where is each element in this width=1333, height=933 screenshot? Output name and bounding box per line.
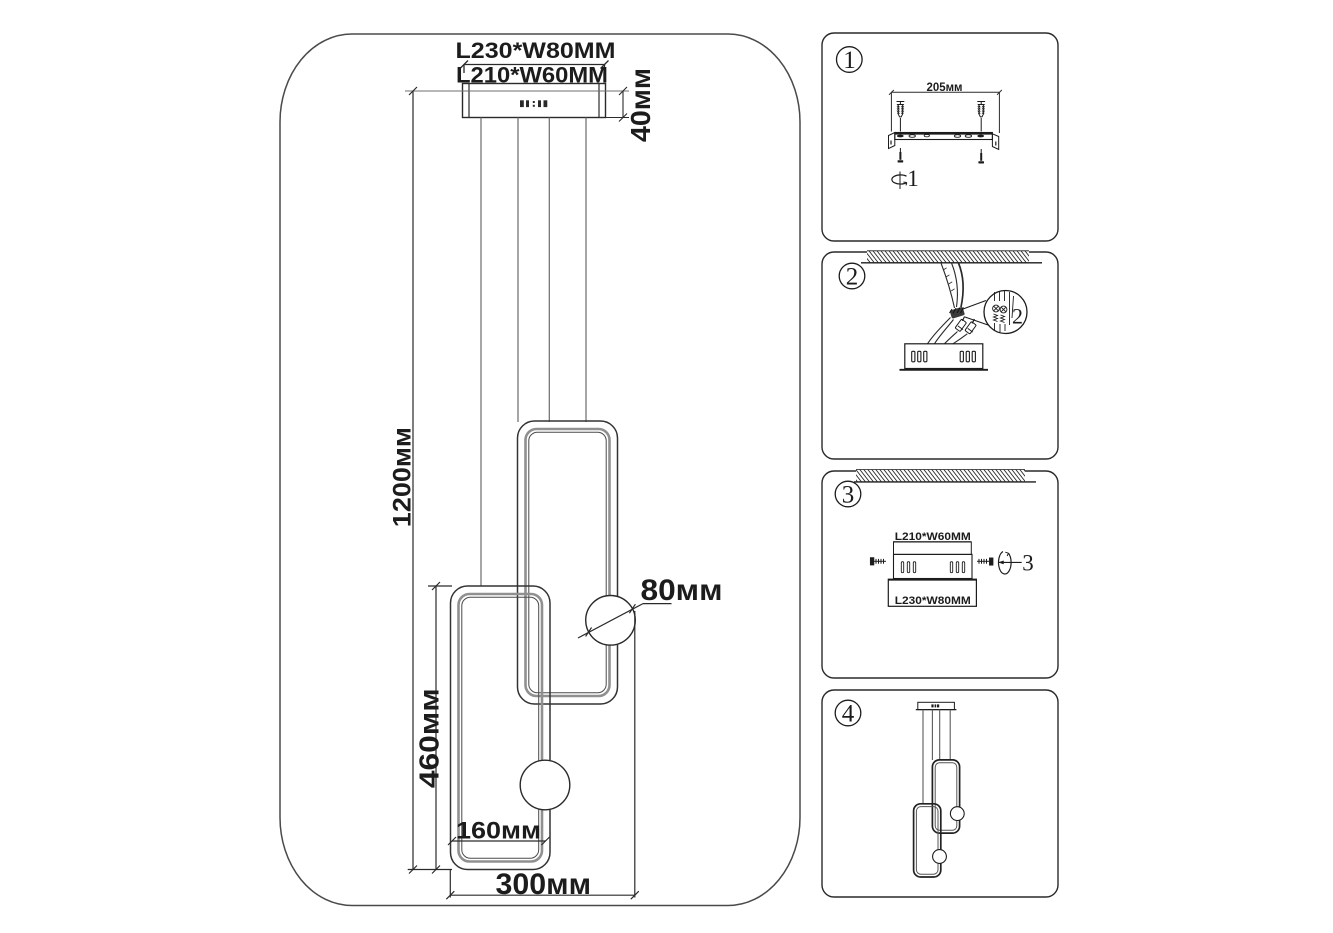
svg-text:1: 1 bbox=[843, 47, 856, 74]
svg-text:2: 2 bbox=[1012, 304, 1023, 329]
svg-text:L230*W80MM: L230*W80MM bbox=[456, 38, 616, 63]
svg-text:1: 1 bbox=[907, 166, 919, 191]
svg-text:460мм: 460мм bbox=[414, 688, 445, 788]
svg-text:300мм: 300мм bbox=[496, 868, 592, 901]
svg-text:3: 3 bbox=[842, 482, 855, 509]
svg-text:L210*W60MM: L210*W60MM bbox=[895, 531, 971, 543]
svg-text:1200мм: 1200мм bbox=[389, 427, 417, 527]
svg-text:2: 2 bbox=[846, 264, 859, 291]
svg-text:L230*W80MM: L230*W80MM bbox=[895, 595, 971, 607]
svg-text:80мм: 80мм bbox=[641, 574, 723, 607]
svg-text:40мм: 40мм bbox=[625, 68, 656, 142]
svg-text:4: 4 bbox=[842, 701, 855, 728]
svg-text:3: 3 bbox=[1022, 551, 1034, 576]
